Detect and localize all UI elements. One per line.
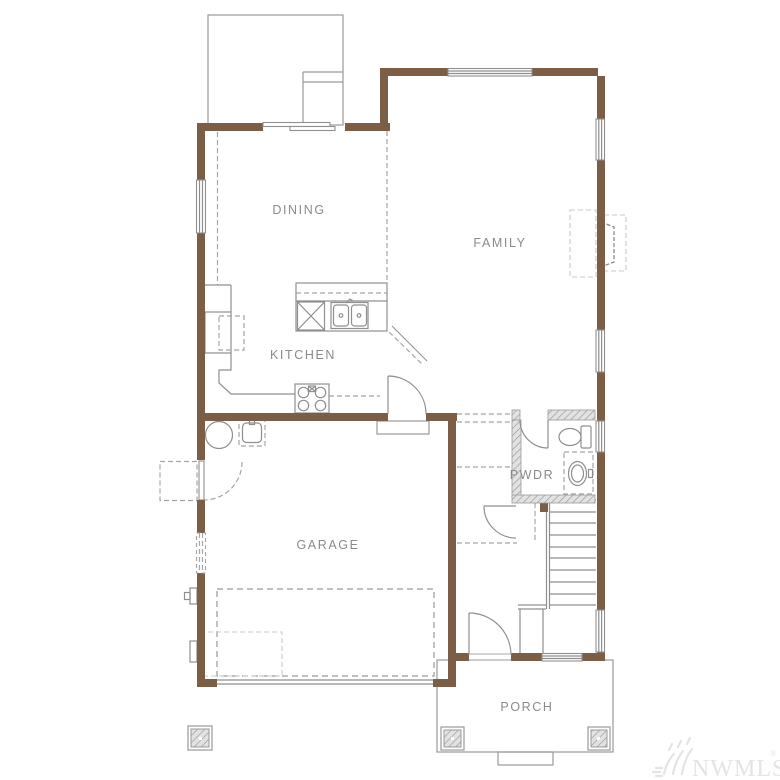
room-label-porch: PORCH xyxy=(500,700,553,714)
background xyxy=(0,0,780,780)
side-door-leaf xyxy=(199,461,204,500)
entry-front-window xyxy=(542,654,582,662)
family-east-window-1 xyxy=(596,119,605,160)
room-label-powder: PWDR xyxy=(510,468,555,482)
watermark-text: NWMLS xyxy=(692,756,780,780)
room-label-garage: GARAGE xyxy=(296,538,359,552)
post-garage-left-icon xyxy=(188,726,212,750)
room-label-kitchen: KITCHEN xyxy=(270,348,336,362)
room-label-family: FAMILY xyxy=(473,236,526,250)
family-north-window xyxy=(448,69,532,77)
stair-east-window xyxy=(596,610,605,652)
watermark-registered: ® xyxy=(770,749,776,758)
family-east-window-2 xyxy=(596,330,605,372)
dining-west-window xyxy=(197,180,206,233)
room-label-dining: DINING xyxy=(272,203,325,217)
floor-plan: DINING FAMILY KITCHEN GARAGE PWDR PORCH … xyxy=(0,0,780,780)
post-porch-right-icon xyxy=(588,727,610,750)
powder-east-window xyxy=(596,421,605,452)
post-porch-left-icon xyxy=(441,727,464,750)
garage-west-window-dashed xyxy=(197,533,206,573)
